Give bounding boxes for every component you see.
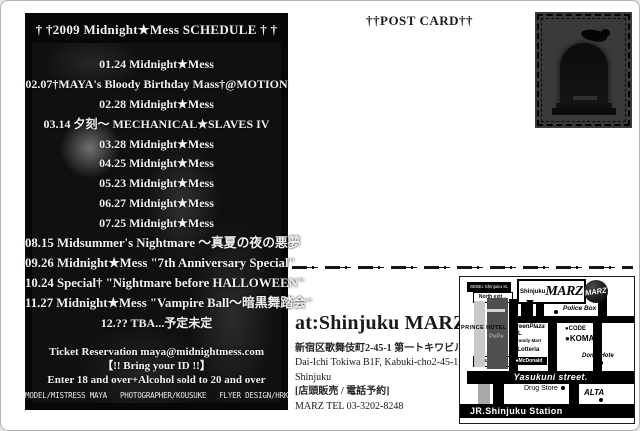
map-rail-road xyxy=(474,301,485,367)
postcard-label: ††POST CARD†† xyxy=(366,13,473,29)
map-greenplaza-el-label: EL xyxy=(514,331,522,337)
map-police-box-label: Police Box xyxy=(563,305,596,312)
venue-address-jp: 新宿区歌舞伎町2-45-1 第一トキワビルB1F xyxy=(295,342,465,356)
schedule-line: 11.27 Midnight★Mess "Vampire Ball～暗黒舞踏会" xyxy=(25,294,288,314)
crow-icon xyxy=(580,27,608,43)
schedule-line: 03.14 夕刻～ MECHANICAL★SLAVES IV xyxy=(25,115,288,135)
ticket-info: Ticket Reservation maya@midnightmess.com… xyxy=(25,346,288,387)
map-greenplaza-label: GreenPlaza xyxy=(512,324,545,330)
epitaph-mark xyxy=(573,96,597,100)
map-jr-station-band: JR.Shinjuku Station xyxy=(460,404,634,418)
schedule-line: 12.?? TBA...予定未定 xyxy=(25,314,288,334)
tombstone-icon xyxy=(560,43,608,109)
map-marker-dot-marz xyxy=(514,312,518,316)
tombstone-step xyxy=(556,103,612,108)
map-marker-dot-police xyxy=(554,310,558,314)
map-koma-label: ●KOMA xyxy=(565,334,594,343)
map-drug-store-label: Drug Store xyxy=(524,385,558,392)
venue-heading: at:Shinjuku MARZ xyxy=(295,312,465,335)
map-small-building-label xyxy=(486,309,505,312)
age-policy-line: Enter 18 and over+Alcohol sold to 20 and… xyxy=(25,374,288,388)
map-marker-dot-drugstore xyxy=(561,386,565,390)
bring-id-line: 【!! Bring your ID !!】 xyxy=(25,360,288,374)
map-street-vertical xyxy=(569,384,579,404)
map-marz-pointer xyxy=(526,300,534,305)
tombstone-photo xyxy=(535,12,632,128)
venue-address-en1: Dai-Ichi Tokiwa B1F, Kabuki-cho2-45-1, xyxy=(295,356,465,370)
marz-globe-text: MARZ xyxy=(585,286,608,298)
credits-line: MODEL/MISTRESS MAYA PHOTOGRAPHER/KOUSUKE… xyxy=(25,391,288,400)
map-gray-road xyxy=(478,384,490,404)
schedule-line: 05.23 Midnight★Mess xyxy=(25,174,288,194)
map-donki-hote-label: Donki Hote xyxy=(582,353,614,359)
map-family-mart-label: ● Family Mart xyxy=(512,338,541,343)
map-street-vertical xyxy=(548,321,557,371)
map-yasukuni-street-band: Yasukuni street. xyxy=(467,371,634,384)
map-marz-label-small: Shinjuku xyxy=(520,289,545,295)
schedule-list: 01.24 Midnight★Mess 02.07†MAYA's Bloody … xyxy=(25,55,288,333)
flyer-panel: † †2009 Midnight★Mess SCHEDULE † † 01.24… xyxy=(25,13,288,410)
schedule-line: 09.26 Midnight★Mess "7th Anniversary Spe… xyxy=(25,254,288,274)
map-marker-dot-alta xyxy=(599,398,603,402)
schedule-line: 10.24 Special† "Nightmare before HALLOWE… xyxy=(25,274,288,294)
barbed-divider-line xyxy=(292,266,633,269)
venue-sales-note: [店頭販売 / 電話予約] xyxy=(295,385,465,399)
map-marz-label-big: MARZ xyxy=(545,284,583,300)
tombstone-base xyxy=(552,108,616,115)
access-map: SEIBU Shinjuku st. North exit→ South exi… xyxy=(459,276,635,424)
venue-phone: MARZ TEL 03-3202-8248 xyxy=(295,400,465,414)
map-seibu-station-label: SEIBU Shinjuku st. xyxy=(467,282,511,292)
schedule-line: 01.24 Midnight★Mess xyxy=(25,55,288,75)
map-lotteria-label: ● Lotteria xyxy=(512,347,539,353)
map-pepe-label: PePe xyxy=(489,334,504,340)
map-alta-label: ALTA xyxy=(584,388,604,397)
schedule-line: 02.07†MAYA's Bloody Birthday Mass†@MOTIO… xyxy=(25,75,288,95)
schedule-line: 02.28 Midnight★Mess xyxy=(25,95,288,115)
map-mcdonald-label: ●McDonald xyxy=(511,357,547,365)
marz-globe-logo: MARZ xyxy=(584,280,608,303)
map-code-label: ●CODE xyxy=(565,326,586,332)
venue-block: at:Shinjuku MARZ 新宿区歌舞伎町2-45-1 第一トキワビルB1… xyxy=(295,312,465,414)
schedule-line: 04.25 Midnight★Mess xyxy=(25,154,288,174)
schedule-line: 07.25 Midnight★Mess xyxy=(25,214,288,234)
schedule-line: 06.27 Midnight★Mess xyxy=(25,194,288,214)
crow-head-icon xyxy=(601,29,610,37)
map-marker-dot-donki xyxy=(599,361,603,365)
ticket-reservation-line: Ticket Reservation maya@midnightmess.com xyxy=(25,346,288,360)
venue-address-en2: Shinjuku xyxy=(295,371,465,385)
postcard-page: † †2009 Midnight★Mess SCHEDULE † † 01.24… xyxy=(0,0,640,431)
flyer-title: † †2009 Midnight★Mess SCHEDULE † † xyxy=(25,22,288,38)
schedule-line: 03.28 Midnight★Mess xyxy=(25,135,288,155)
schedule-line: 08.15 Midsummer's Nightmare ～真夏の夜の悪夢 xyxy=(25,234,288,254)
map-street-vertical xyxy=(493,384,504,404)
